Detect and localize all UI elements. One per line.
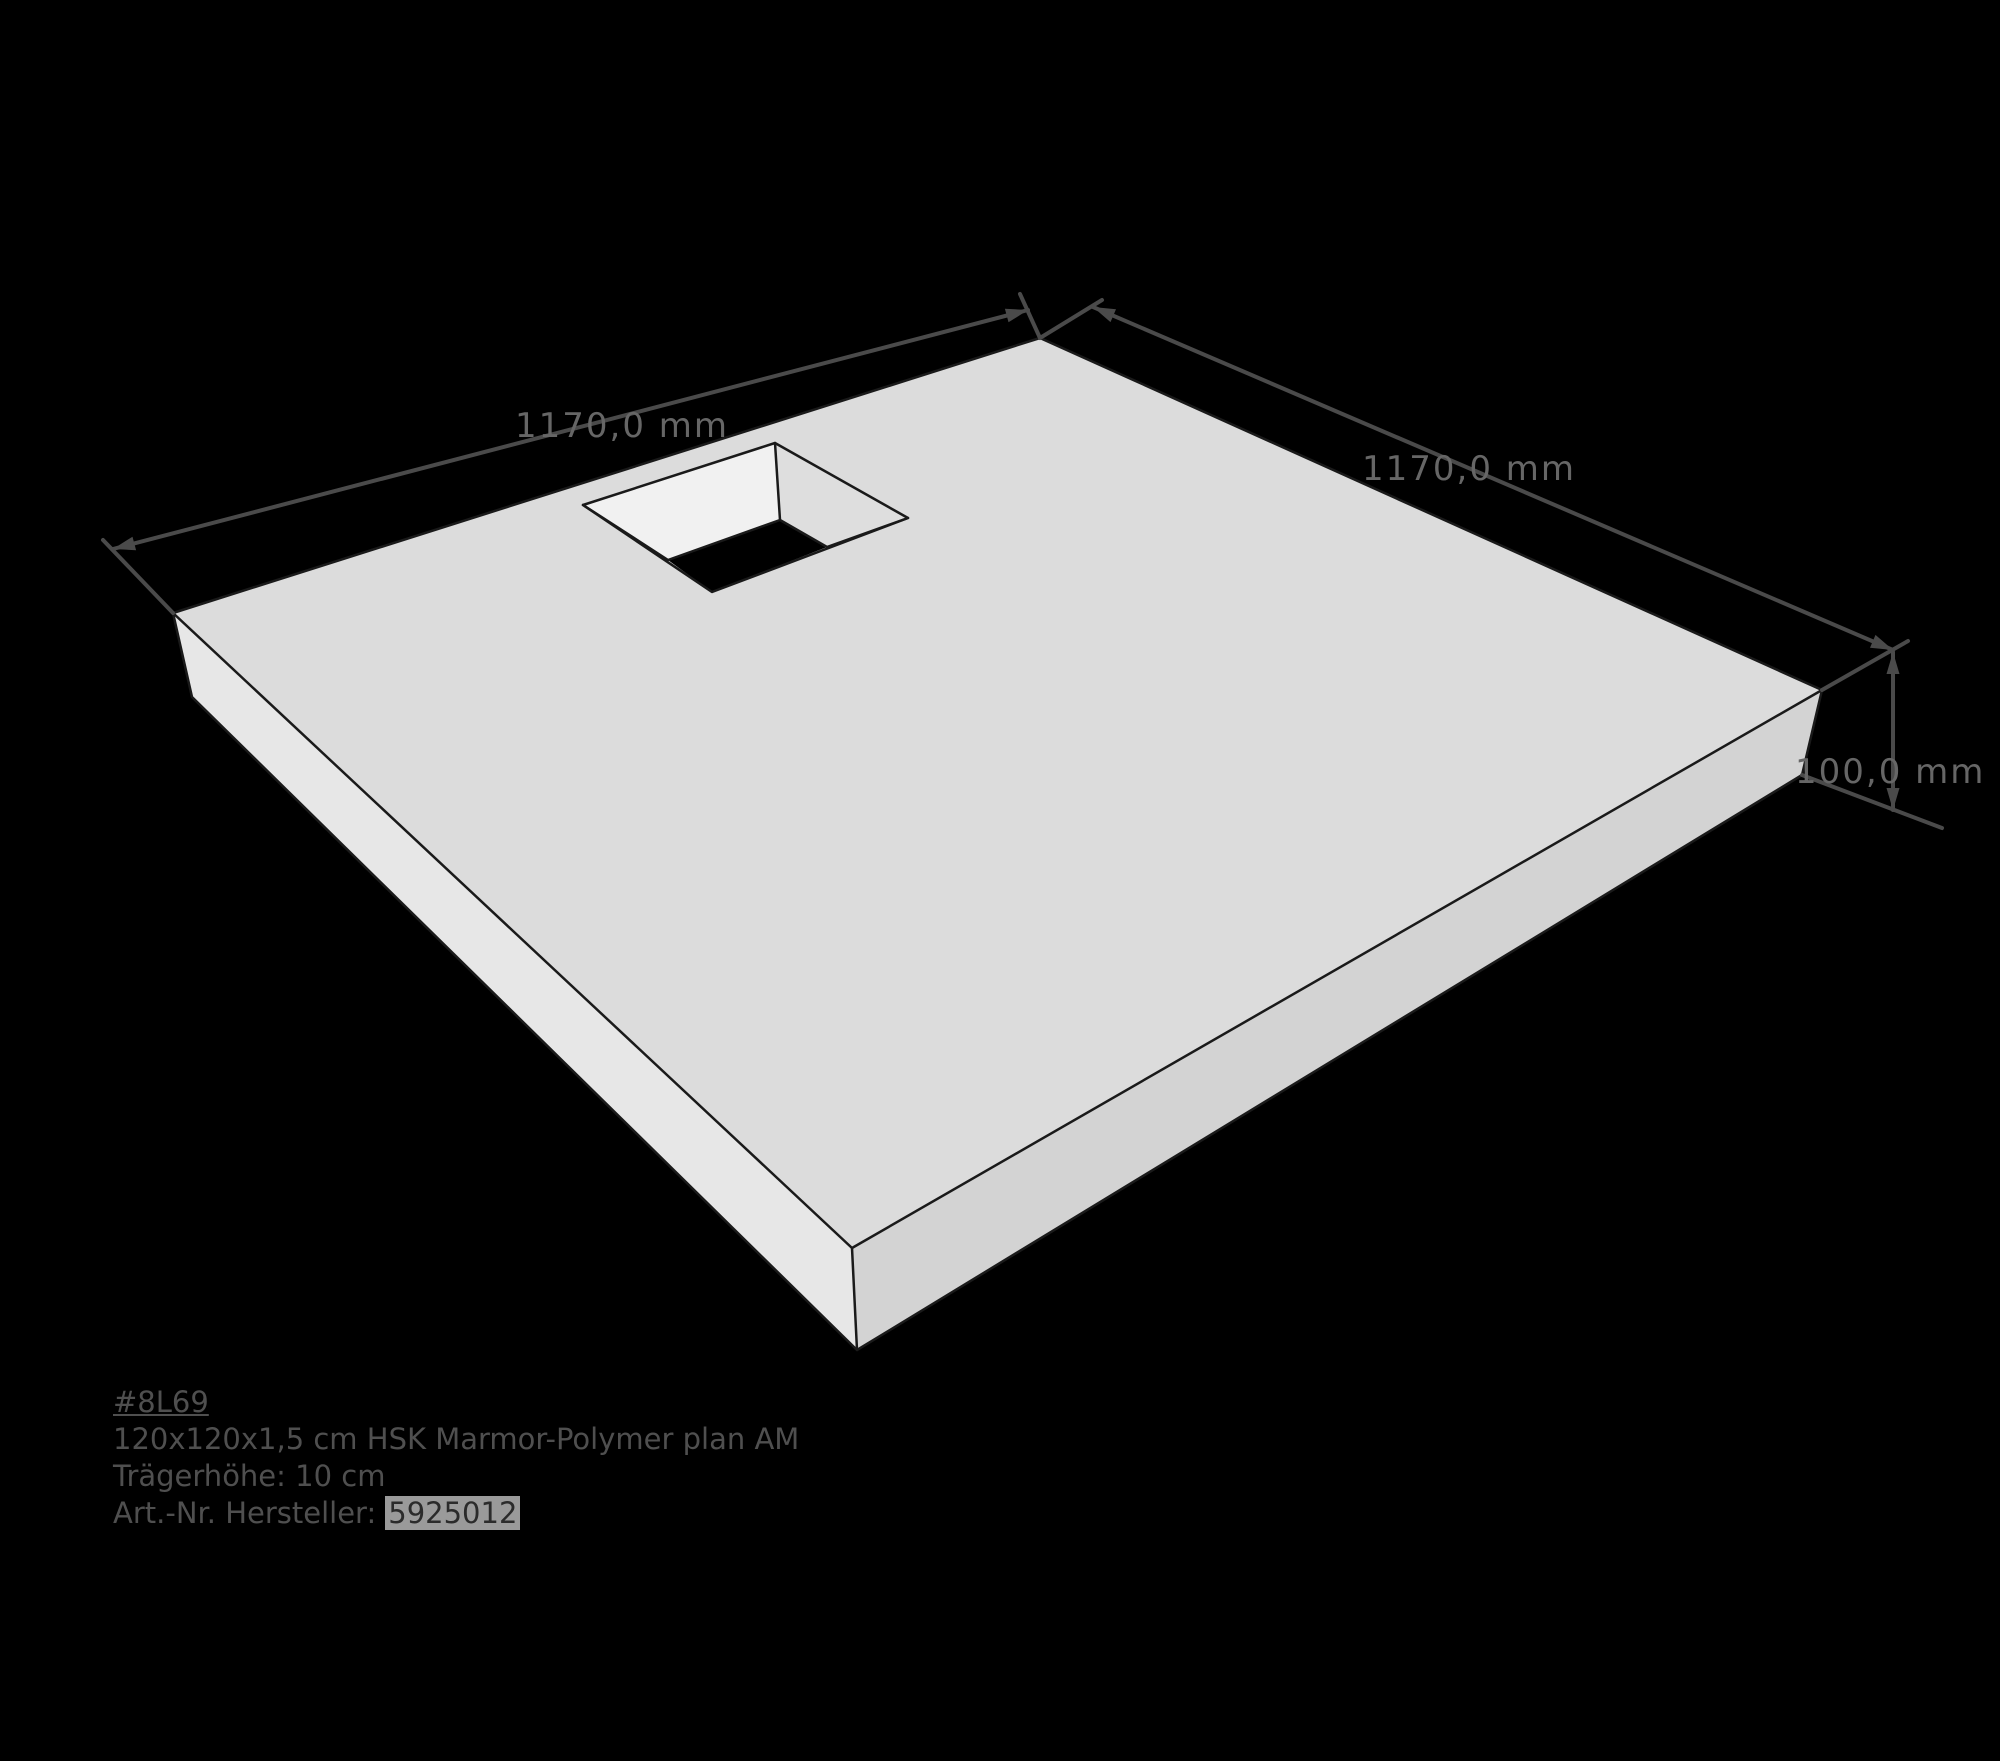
diagram-canvas: 1170,0 mm 1170,0 mm 100,0 mm #8L69 120x1… bbox=[0, 0, 2000, 1761]
arrow-depth-near bbox=[1093, 307, 1116, 322]
product-id-link[interactable]: #8L69 bbox=[113, 1384, 209, 1421]
arrow-width-near bbox=[1005, 309, 1028, 323]
arrow-depth-far bbox=[1870, 635, 1893, 650]
width-dimension-label: 1170,0 mm bbox=[515, 406, 729, 446]
carrier-height-text: Trägerhöhe: 10 cm bbox=[113, 1458, 799, 1495]
article-number-value: 5925012 bbox=[385, 1496, 520, 1530]
product-description: 120x120x1,5 cm HSK Marmor-Polymer plan A… bbox=[113, 1421, 799, 1458]
article-number-line: Art.-Nr. Hersteller:5925012 bbox=[113, 1495, 799, 1532]
arrow-width-far bbox=[113, 537, 136, 551]
product-info-block: #8L69 120x120x1,5 cm HSK Marmor-Polymer … bbox=[113, 1384, 799, 1532]
depth-dimension-label: 1170,0 mm bbox=[1362, 449, 1576, 489]
height-dimension-label: 100,0 mm bbox=[1795, 752, 1985, 792]
arrow-height-top bbox=[1887, 652, 1900, 674]
article-number-label: Art.-Nr. Hersteller: bbox=[113, 1496, 376, 1530]
